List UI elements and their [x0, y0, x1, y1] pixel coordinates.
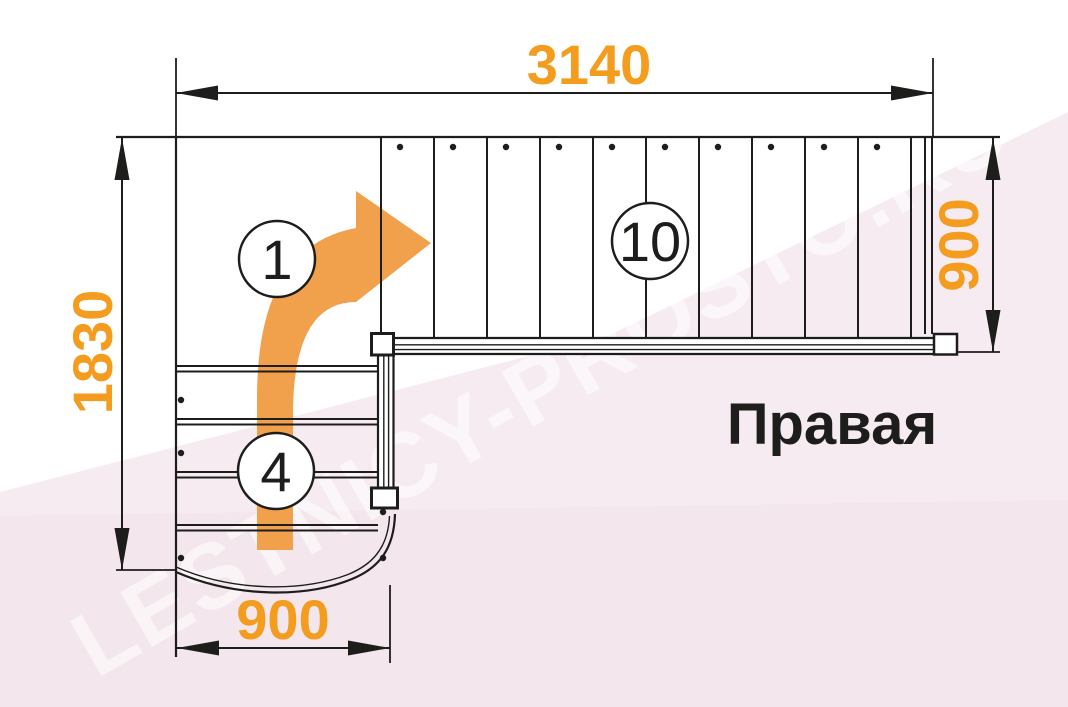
step-marker-upper: 10: [612, 203, 688, 279]
screw-dot: [662, 144, 668, 150]
screw-dot: [450, 144, 456, 150]
newel-post-bottom: [372, 488, 398, 508]
screw-dot: [556, 144, 562, 150]
orientation-title: Правая: [727, 392, 937, 457]
dimension-label-lower-flight-width: 900: [236, 588, 329, 651]
screw-dot: [821, 144, 827, 150]
screw-dot: [874, 144, 880, 150]
step-marker-label-first: 1: [261, 228, 292, 291]
staircase-plan-screenshot: LESTNICY-PROSTO.RU: [0, 0, 1068, 707]
screw-dot: [380, 509, 386, 515]
screw-dot: [397, 144, 403, 150]
stringer-end-block: [934, 334, 957, 355]
screw-dot: [503, 144, 509, 150]
dimension-label-total-length: 3140: [527, 33, 652, 96]
screw-dot: [768, 144, 774, 150]
screw-dot: [609, 144, 615, 150]
newel-post-top: [372, 334, 394, 356]
stair-plan-drawing: LESTNICY-PROSTO.RU: [0, 0, 1068, 707]
step-marker-lower: 4: [238, 433, 314, 509]
dimension-label-upper-flight-width: 900: [927, 198, 990, 291]
screw-dot: [178, 397, 184, 403]
step-marker-first: 1: [239, 221, 315, 297]
dimension-label-total-width: 1830: [61, 290, 124, 415]
screw-dot: [178, 555, 184, 561]
stringer-body: [378, 355, 394, 488]
upper-flight-stringer: [394, 334, 957, 355]
screw-dot: [715, 144, 721, 150]
screw-dot: [178, 450, 184, 456]
step-marker-label-upper: 10: [619, 210, 681, 273]
stringer-body: [394, 338, 934, 354]
step-marker-label-lower: 4: [260, 440, 291, 503]
